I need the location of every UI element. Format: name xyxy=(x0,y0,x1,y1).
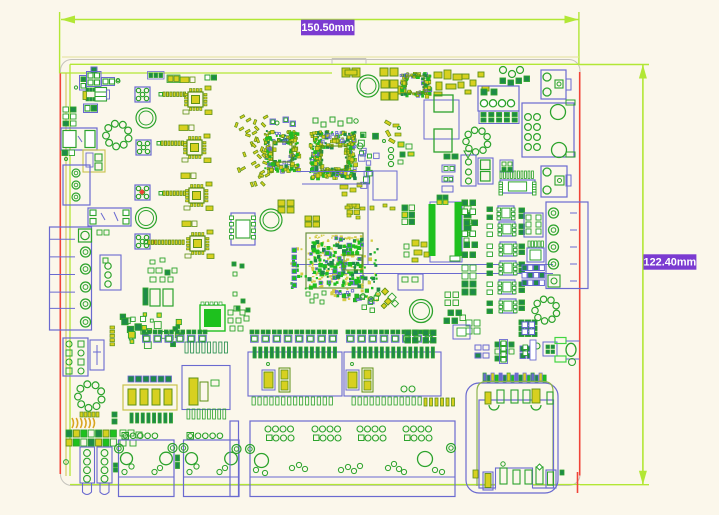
svg-text:150.50mm: 150.50mm xyxy=(301,22,354,34)
svg-text:122.40mm: 122.40mm xyxy=(644,257,697,269)
